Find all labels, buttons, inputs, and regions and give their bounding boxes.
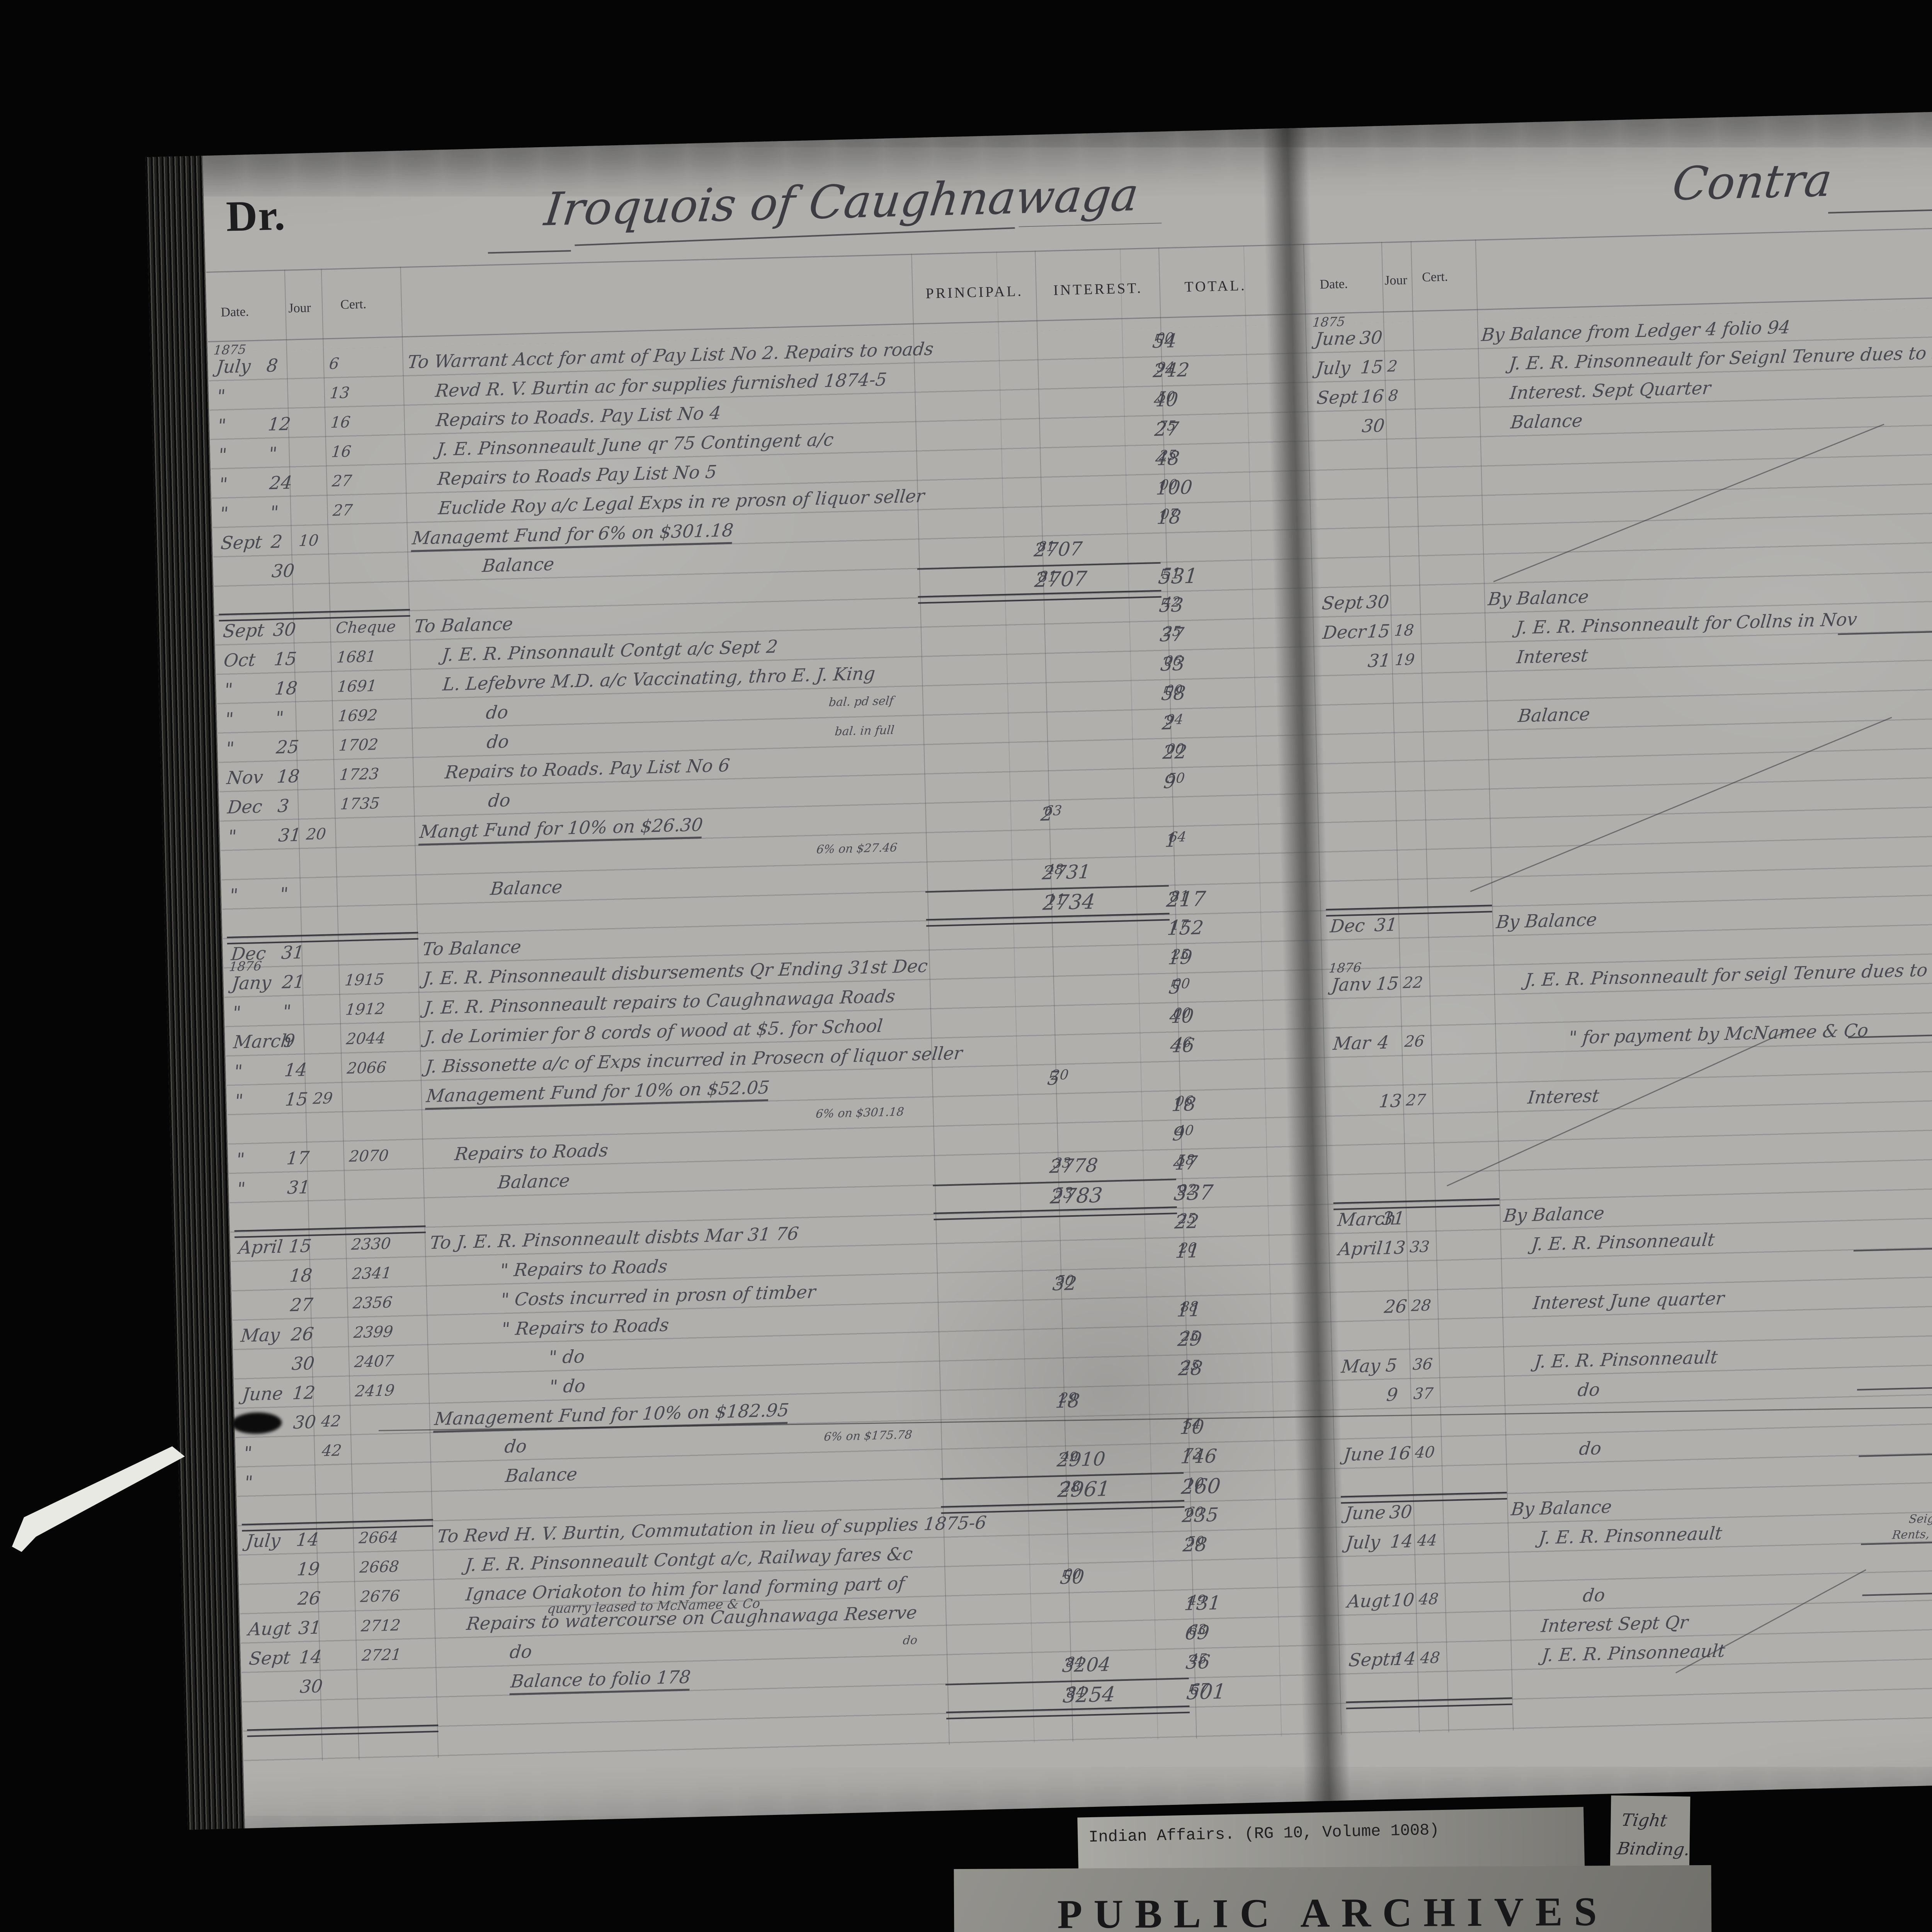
date-column-double-rule [1346, 1697, 1512, 1709]
cell-description: Balance [1510, 410, 1583, 433]
cell-description: J. E. R. Pinsonneault [1541, 1640, 1726, 1666]
credit-entries: 1875June30By Balance from Ledger 4 folio… [145, 99, 1932, 1830]
cell-date-month: April [1337, 1238, 1383, 1260]
cell-date-day: 30 [1366, 591, 1390, 613]
cell-date-day: 13 [1378, 1090, 1403, 1112]
cell-date-month: Mar [1332, 1032, 1372, 1054]
cell-date-month: July [1345, 1531, 1381, 1553]
cell-date-day: 30 [1359, 327, 1383, 349]
cell-date-month: June [1314, 328, 1357, 350]
cell-jour: 28 [1410, 1297, 1432, 1315]
cell-date-month: Septr [1348, 1648, 1400, 1670]
cell-date-month: Janv [1331, 973, 1372, 995]
cell-date-day: 5 [1385, 1355, 1398, 1376]
cell-description: J. E. R. Pinsonneault [1531, 1229, 1716, 1255]
archive-reference-text: Indian Affairs. (RG 10, Volume 1008) [1088, 1821, 1439, 1847]
cell-jour: 2 [1387, 357, 1398, 376]
cell-annotation: Rents, Constituées 12.95 [1861, 1525, 1932, 1545]
cell-date-day: 15 [1366, 621, 1391, 642]
cell-description: By Balance [1495, 909, 1598, 932]
cell-description: Interest June quarter [1532, 1287, 1725, 1313]
cell-annotation: Stone [1857, 1370, 1932, 1391]
cell-description: do [1578, 1438, 1602, 1459]
cell-description: By Balance [1487, 586, 1590, 610]
cell-date-month: July [1315, 357, 1351, 379]
cell-date-month: Sept [1316, 386, 1359, 408]
cell-date-day: 31 [1367, 650, 1392, 672]
cell-description: J. E. R. Pinsonneault for seigl Tenure d… [1524, 957, 1932, 990]
cell-date-month: Decr [1322, 621, 1367, 643]
cell-date-month: Dec [1329, 915, 1366, 937]
cell-date-day: 30 [1388, 1501, 1413, 1523]
cell-annotation: Stone Dues [1862, 1576, 1932, 1596]
sticky-line-1: Tight [1620, 1810, 1668, 1831]
cell-jour: 48 [1418, 1590, 1439, 1608]
cell-description: Interest Sept Qr [1540, 1612, 1689, 1636]
cell-date-day: 14 [1392, 1648, 1417, 1670]
cell-date-day: 26 [1383, 1296, 1408, 1317]
cell-jour: 18 [1393, 621, 1415, 639]
cell-annotation: Stone 91.60 [1854, 1231, 1932, 1252]
cell-annotation: Rent [1856, 1341, 1932, 1359]
cell-description: do [1582, 1584, 1606, 1606]
cell-date-day: 10 [1391, 1589, 1415, 1611]
cell-annotation: Stone dues [1864, 1634, 1932, 1653]
cell-jour: 26 [1404, 1032, 1425, 1051]
year-label: 1875 [1312, 314, 1346, 330]
ledger-book: 177 Dr. Iroquois of Caughnawaga Contra S… [145, 99, 1932, 1830]
cell-jour: 22 [1402, 974, 1423, 992]
cell-date-month: Augt [1346, 1590, 1391, 1612]
cell-description: Interest [1527, 1085, 1600, 1108]
cell-date-month: Sept [1321, 592, 1364, 614]
cell-date-day: 9 [1386, 1384, 1399, 1405]
cell-date-day: 30 [1361, 415, 1386, 437]
cell-jour: 44 [1417, 1531, 1438, 1549]
cell-description: By Balance [1510, 1496, 1613, 1520]
cell-date-day: 14 [1389, 1531, 1414, 1552]
cell-jour: 8 [1388, 387, 1399, 405]
cell-jour: 36 [1412, 1355, 1433, 1374]
cell-annotation: Rent 62.56 [1858, 1421, 1932, 1439]
cell-date-day: 16 [1387, 1442, 1412, 1464]
cell-jour: 19 [1394, 651, 1415, 669]
cell-date-month: June [1343, 1443, 1385, 1465]
cell-date-day: 4 [1377, 1032, 1390, 1053]
stamp-line-english: PUBLIC ARCHIVES [954, 1888, 1712, 1932]
sticky-line-2: Binding. [1616, 1839, 1691, 1860]
cell-jour: 48 [1419, 1649, 1440, 1667]
cell-date-day: 31 [1381, 1207, 1406, 1229]
cell-date-day: 31 [1374, 914, 1398, 935]
cell-description: " for payment by McNamee & Co [1568, 1020, 1869, 1048]
cell-description: By Balance [1503, 1202, 1605, 1226]
cell-description: By Balance from Ledger 4 folio 94 [1480, 316, 1791, 345]
archival-photo: 177 Dr. Iroquois of Caughnawaga Contra S… [0, 0, 1932, 1932]
cell-date-day: 13 [1382, 1237, 1406, 1259]
cell-jour: 40 [1414, 1443, 1435, 1461]
cell-date-month: May [1340, 1355, 1381, 1377]
cell-date-month: June [1344, 1502, 1386, 1524]
cell-jour: 37 [1413, 1384, 1434, 1403]
cell-date-day: 16 [1360, 386, 1385, 407]
year-label: 1876 [1328, 960, 1362, 976]
cell-date-day: 15 [1359, 356, 1384, 378]
cell-description: Interest [1515, 645, 1589, 668]
photo-pointer-artifact [12, 1435, 185, 1563]
public-archives-stamp: PUBLIC ARCHIVES ARCHIVES PUBLIQUES CANAD… [954, 1865, 1713, 1932]
cell-jour: 27 [1405, 1091, 1427, 1109]
cell-date-day: 15 [1375, 973, 1400, 994]
cell-description: Balance [1517, 704, 1591, 726]
cell-description: J. E. R. Pinsonneault [1538, 1523, 1723, 1548]
cell-annotation: Stone 61.00 [1859, 1437, 1932, 1457]
cell-jour: 33 [1409, 1238, 1430, 1256]
cell-description: do [1577, 1379, 1600, 1401]
cell-description: J. E. R. Pinsonneault [1534, 1347, 1719, 1372]
